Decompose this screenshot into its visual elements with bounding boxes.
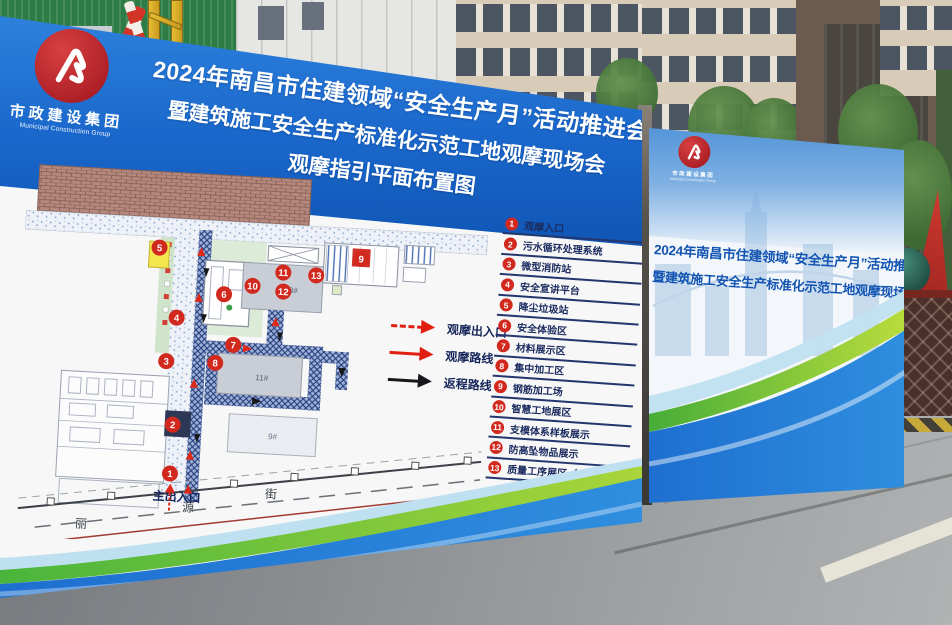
- legend-label: 智慧工地展区: [511, 400, 572, 419]
- building-11-label: 11#: [255, 373, 269, 383]
- route-key-label: 返程路线: [443, 374, 492, 394]
- logo-circle-icon: [31, 25, 112, 106]
- legend-number-badge: 2: [503, 237, 517, 251]
- legend-label: 污水循环处理系统: [522, 237, 603, 258]
- legend-label: 安全宣讲平台: [520, 278, 581, 297]
- red-dashed-arrow-icon: [391, 318, 438, 335]
- route-key-label: 观摩路线: [445, 347, 494, 367]
- svg-text:9: 9: [358, 254, 364, 265]
- legend-number-badge: 1: [505, 217, 519, 231]
- left-billboard-logo: 市政建设集团 Municipal Construction Group: [0, 22, 143, 141]
- facade-window: [258, 6, 284, 40]
- legend-number-badge: 10: [492, 400, 506, 414]
- right-billboard-logo: 市政建设集团 Municipal Construction Group: [658, 134, 730, 184]
- legend-label: 观摩入口: [524, 217, 565, 235]
- svg-text:10: 10: [247, 281, 258, 293]
- legend-label: 钢筋加工场: [512, 380, 563, 398]
- svg-text:7: 7: [230, 340, 236, 351]
- red-solid-arrow-icon: [389, 345, 436, 362]
- mountain-mark-icon: [46, 41, 97, 92]
- svg-text:12: 12: [278, 287, 289, 299]
- legend-number-badge: 5: [499, 298, 513, 312]
- legend-number-badge: 6: [498, 319, 512, 333]
- legend-number-badge: 7: [496, 339, 510, 353]
- small-structure: [404, 245, 435, 265]
- logo-circle-icon: [678, 135, 712, 169]
- black-solid-arrow-icon: [387, 372, 434, 389]
- legend-label: 降尘垃圾站: [518, 299, 569, 317]
- legend-label: 安全体验区: [517, 319, 568, 337]
- svg-text:8: 8: [212, 358, 218, 369]
- legend-label: 材料展示区: [515, 339, 566, 357]
- legend-label: 集中加工区: [514, 360, 565, 378]
- route-connector: [266, 310, 284, 347]
- route-key: 观摩出入口 观摩路线 返程路线: [387, 312, 508, 400]
- wave-band-graphic: [649, 268, 905, 508]
- gate-structure: [268, 246, 319, 264]
- legend-number-badge: 3: [502, 258, 516, 272]
- facade-window: [302, 2, 324, 30]
- mountain-mark-icon: [684, 141, 705, 162]
- right-billboard: 市政建设集团 Municipal Construction Group 2024…: [649, 96, 905, 511]
- small-structure: [403, 267, 426, 282]
- svg-text:3: 3: [163, 357, 169, 368]
- legend-number-badge: 8: [495, 359, 509, 373]
- svg-text:11: 11: [278, 268, 289, 280]
- construction-site-photo: 市政建设集团 Municipal Construction Group 2024…: [0, 0, 952, 625]
- svg-text:6: 6: [221, 290, 227, 301]
- legend-label: 微型消防站: [521, 258, 572, 276]
- small-structure: [332, 285, 341, 294]
- svg-text:13: 13: [311, 271, 322, 283]
- legend-number-badge: 4: [501, 278, 515, 292]
- legend-number-badge: 9: [494, 380, 508, 394]
